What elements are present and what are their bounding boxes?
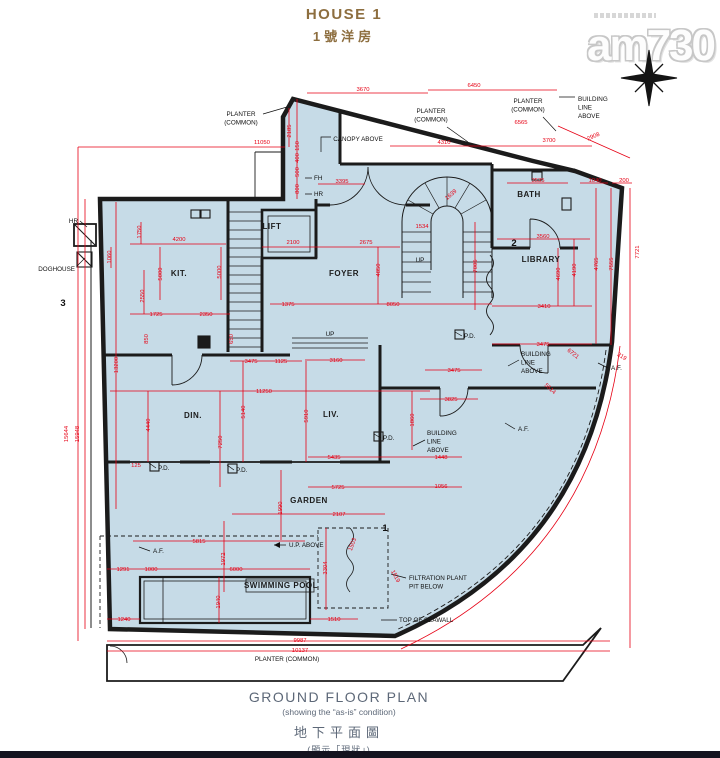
- room-label: FOYER: [329, 269, 359, 278]
- room-label: KIT.: [171, 269, 187, 278]
- dimension-text: 9987: [293, 638, 306, 644]
- dimension-text: 319: [616, 352, 628, 362]
- room-label: LIBRARY: [522, 255, 561, 264]
- room-label: BATH: [517, 190, 541, 199]
- dimension-text: 1125: [275, 359, 288, 365]
- dimension-text: 1972: [221, 552, 227, 565]
- room-label: LIFT: [263, 222, 282, 231]
- room-label: LIV.: [323, 410, 339, 419]
- dimension-text: 1291: [116, 567, 129, 573]
- dimension-text: 5910: [304, 409, 310, 423]
- dimension-text: 3395: [335, 179, 349, 185]
- annotation-label: ABOVE: [427, 447, 449, 454]
- compass-icon: [621, 50, 677, 106]
- dimension-text: 2185: [287, 124, 293, 138]
- dimension-text: 1040: [588, 178, 602, 184]
- dimension-text: 1750: [137, 225, 143, 239]
- dimension-text: 5000: [158, 267, 164, 281]
- dimension-text: 1725: [149, 312, 163, 318]
- annotation-label: PLANTER: [226, 111, 255, 118]
- floor-plan: KIT.FOYERBATHLIBRARYDIN.LIV.GARDENSWIMMI…: [0, 0, 720, 758]
- dimension-text: 2350: [199, 312, 213, 318]
- annotation-label: A.F.: [611, 365, 622, 372]
- dimension-text: 4690: [556, 267, 562, 281]
- dimension-text: 1860: [410, 413, 416, 427]
- annotation-label: LINE: [427, 439, 441, 446]
- annotation-label: A.F.: [153, 548, 164, 555]
- annotation-label: PLANTER: [513, 98, 542, 105]
- dimension-text: 3535: [531, 178, 545, 184]
- annotation-label: 1: [382, 523, 388, 534]
- annotation-label: (COMMON): [511, 107, 545, 114]
- annotation-label: P.D.: [464, 333, 476, 340]
- room-label: DIN.: [184, 411, 202, 420]
- annotation-label: CANOPY ABOVE: [333, 136, 383, 143]
- annotation-label: UP: [416, 257, 425, 264]
- dimension-text: 2107: [332, 512, 345, 518]
- dimension-text: 1375: [281, 302, 295, 308]
- dimension-text: 3475: [244, 359, 258, 365]
- dimension-text: 1990: [278, 501, 284, 515]
- annotation-label: P.D.: [158, 465, 170, 472]
- annotation-label: 2: [511, 238, 516, 249]
- dimension-text: 11050: [254, 140, 271, 146]
- dimension-text: 1056: [434, 484, 448, 490]
- column: [198, 336, 210, 348]
- annotation-label: PLANTER (COMMON): [255, 656, 319, 663]
- dimension-text: 1240: [117, 617, 131, 623]
- annotation-label: PIT BELOW: [409, 584, 443, 591]
- dimension-text: 11250: [256, 389, 273, 395]
- dimension-text: 1000: [144, 567, 158, 573]
- dimension-text: 3410: [537, 304, 551, 310]
- annotation-label: HR: [314, 191, 324, 198]
- caption-subtitle: (showing the “as-is” condition): [0, 707, 678, 717]
- dimension-text: 2675: [359, 240, 373, 246]
- dimension-text: 15644: [64, 425, 70, 442]
- dimension-text: 13200: [114, 356, 120, 373]
- caption-title-zh: 地下平面圖: [0, 722, 678, 741]
- dimension-text: 7250: [218, 435, 224, 449]
- dimension-text: 7721: [635, 245, 641, 258]
- dimension-text: 3304: [323, 561, 329, 575]
- annotation-label: BUILDING: [578, 96, 608, 103]
- annotation-label: HR: [69, 218, 79, 225]
- dimension-text: 1940: [216, 595, 222, 609]
- dimension-text: 2550: [140, 289, 146, 303]
- dimension-text: 4765: [594, 257, 600, 271]
- dimension-text: 3560: [536, 234, 550, 240]
- dimension-text: 125: [131, 463, 142, 469]
- dimension-text: 5815: [192, 539, 206, 545]
- dimension-text: 6000: [229, 567, 243, 573]
- dimension-text: 3670: [356, 87, 370, 93]
- room-label: GARDEN: [290, 496, 328, 505]
- annotation-label: ABOVE: [521, 368, 543, 375]
- dimension-text: 650: [229, 333, 235, 344]
- dimension-text: 4190: [572, 263, 578, 277]
- dimension-text: 5435: [327, 455, 341, 461]
- annotation-label: (COMMON): [414, 117, 448, 124]
- annotation-label: BUILDING: [521, 351, 551, 358]
- dimension-text: 2908: [586, 131, 601, 142]
- dimension-text: 400: [295, 152, 301, 163]
- annotation-label: FILTRATION PLANT: [409, 575, 467, 582]
- annotation-label: UP: [326, 331, 335, 338]
- bottom-bar: [0, 751, 720, 758]
- dimension-text: 3475: [536, 342, 550, 348]
- annotation-label: PLANTER: [416, 108, 445, 115]
- annotation-label: LINE: [578, 105, 592, 112]
- annotation-label: (COMMON): [224, 120, 258, 127]
- page: HOUSE 1 1號洋房 am730: [0, 0, 720, 758]
- dimension-text: 4310: [437, 140, 451, 146]
- annotation-label: FH: [314, 175, 323, 182]
- dimension-text: 7005: [473, 259, 479, 273]
- dimension-text: 4200: [172, 237, 186, 243]
- dimension-text: 4850: [376, 263, 382, 277]
- annotation-label: LINE: [521, 360, 535, 367]
- dimension-text: 850: [144, 333, 150, 344]
- dimension-text: 1060: [107, 250, 113, 264]
- annotation-label: BUILDING: [427, 430, 457, 437]
- annotation-label: TOP OF SEAWALL: [399, 617, 454, 624]
- dimension-text: 7555: [609, 257, 615, 271]
- dimension-text: 8050: [386, 302, 400, 308]
- annotation-label: U.P. ABOVE: [289, 542, 324, 549]
- dimension-text: 5725: [331, 485, 345, 491]
- dimension-text: 800: [295, 183, 301, 194]
- caption: GROUND FLOOR PLAN (showing the “as-is” c…: [0, 689, 678, 756]
- dimension-text: 3475: [447, 368, 461, 374]
- annotation-label: DOGHOUSE: [38, 266, 75, 273]
- dimension-text: 2100: [286, 240, 300, 246]
- annotation-label: ABOVE: [578, 113, 600, 120]
- dimension-text: 3700: [542, 138, 556, 144]
- dimension-text: 6565: [514, 120, 528, 126]
- dimension-text: 3825: [444, 397, 458, 403]
- caption-title: GROUND FLOOR PLAN: [0, 689, 678, 705]
- dimension-text: 200: [619, 178, 630, 184]
- dimension-text: 6450: [467, 83, 481, 89]
- annotation-label: P.D.: [383, 435, 395, 442]
- dimension-text: 4440: [146, 418, 152, 432]
- dimension-text: 5000: [217, 265, 223, 279]
- dimension-text: 3160: [329, 358, 343, 364]
- dimension-text: 1448: [434, 455, 448, 461]
- dimension-text: 10137: [292, 648, 308, 654]
- dimension-text: 500: [295, 166, 301, 177]
- annotation-label: P.D.: [236, 467, 248, 474]
- dimension-text: 150: [295, 140, 301, 151]
- dimension-text: 5140: [241, 405, 247, 419]
- annotation-label: 3: [60, 298, 65, 309]
- dimension-text: 15948: [75, 425, 81, 442]
- dimension-text: 1510: [327, 617, 341, 623]
- dimension-text: 1534: [415, 224, 429, 230]
- annotation-label: A.F.: [518, 426, 529, 433]
- room-label: SWIMMING POOL: [244, 581, 318, 590]
